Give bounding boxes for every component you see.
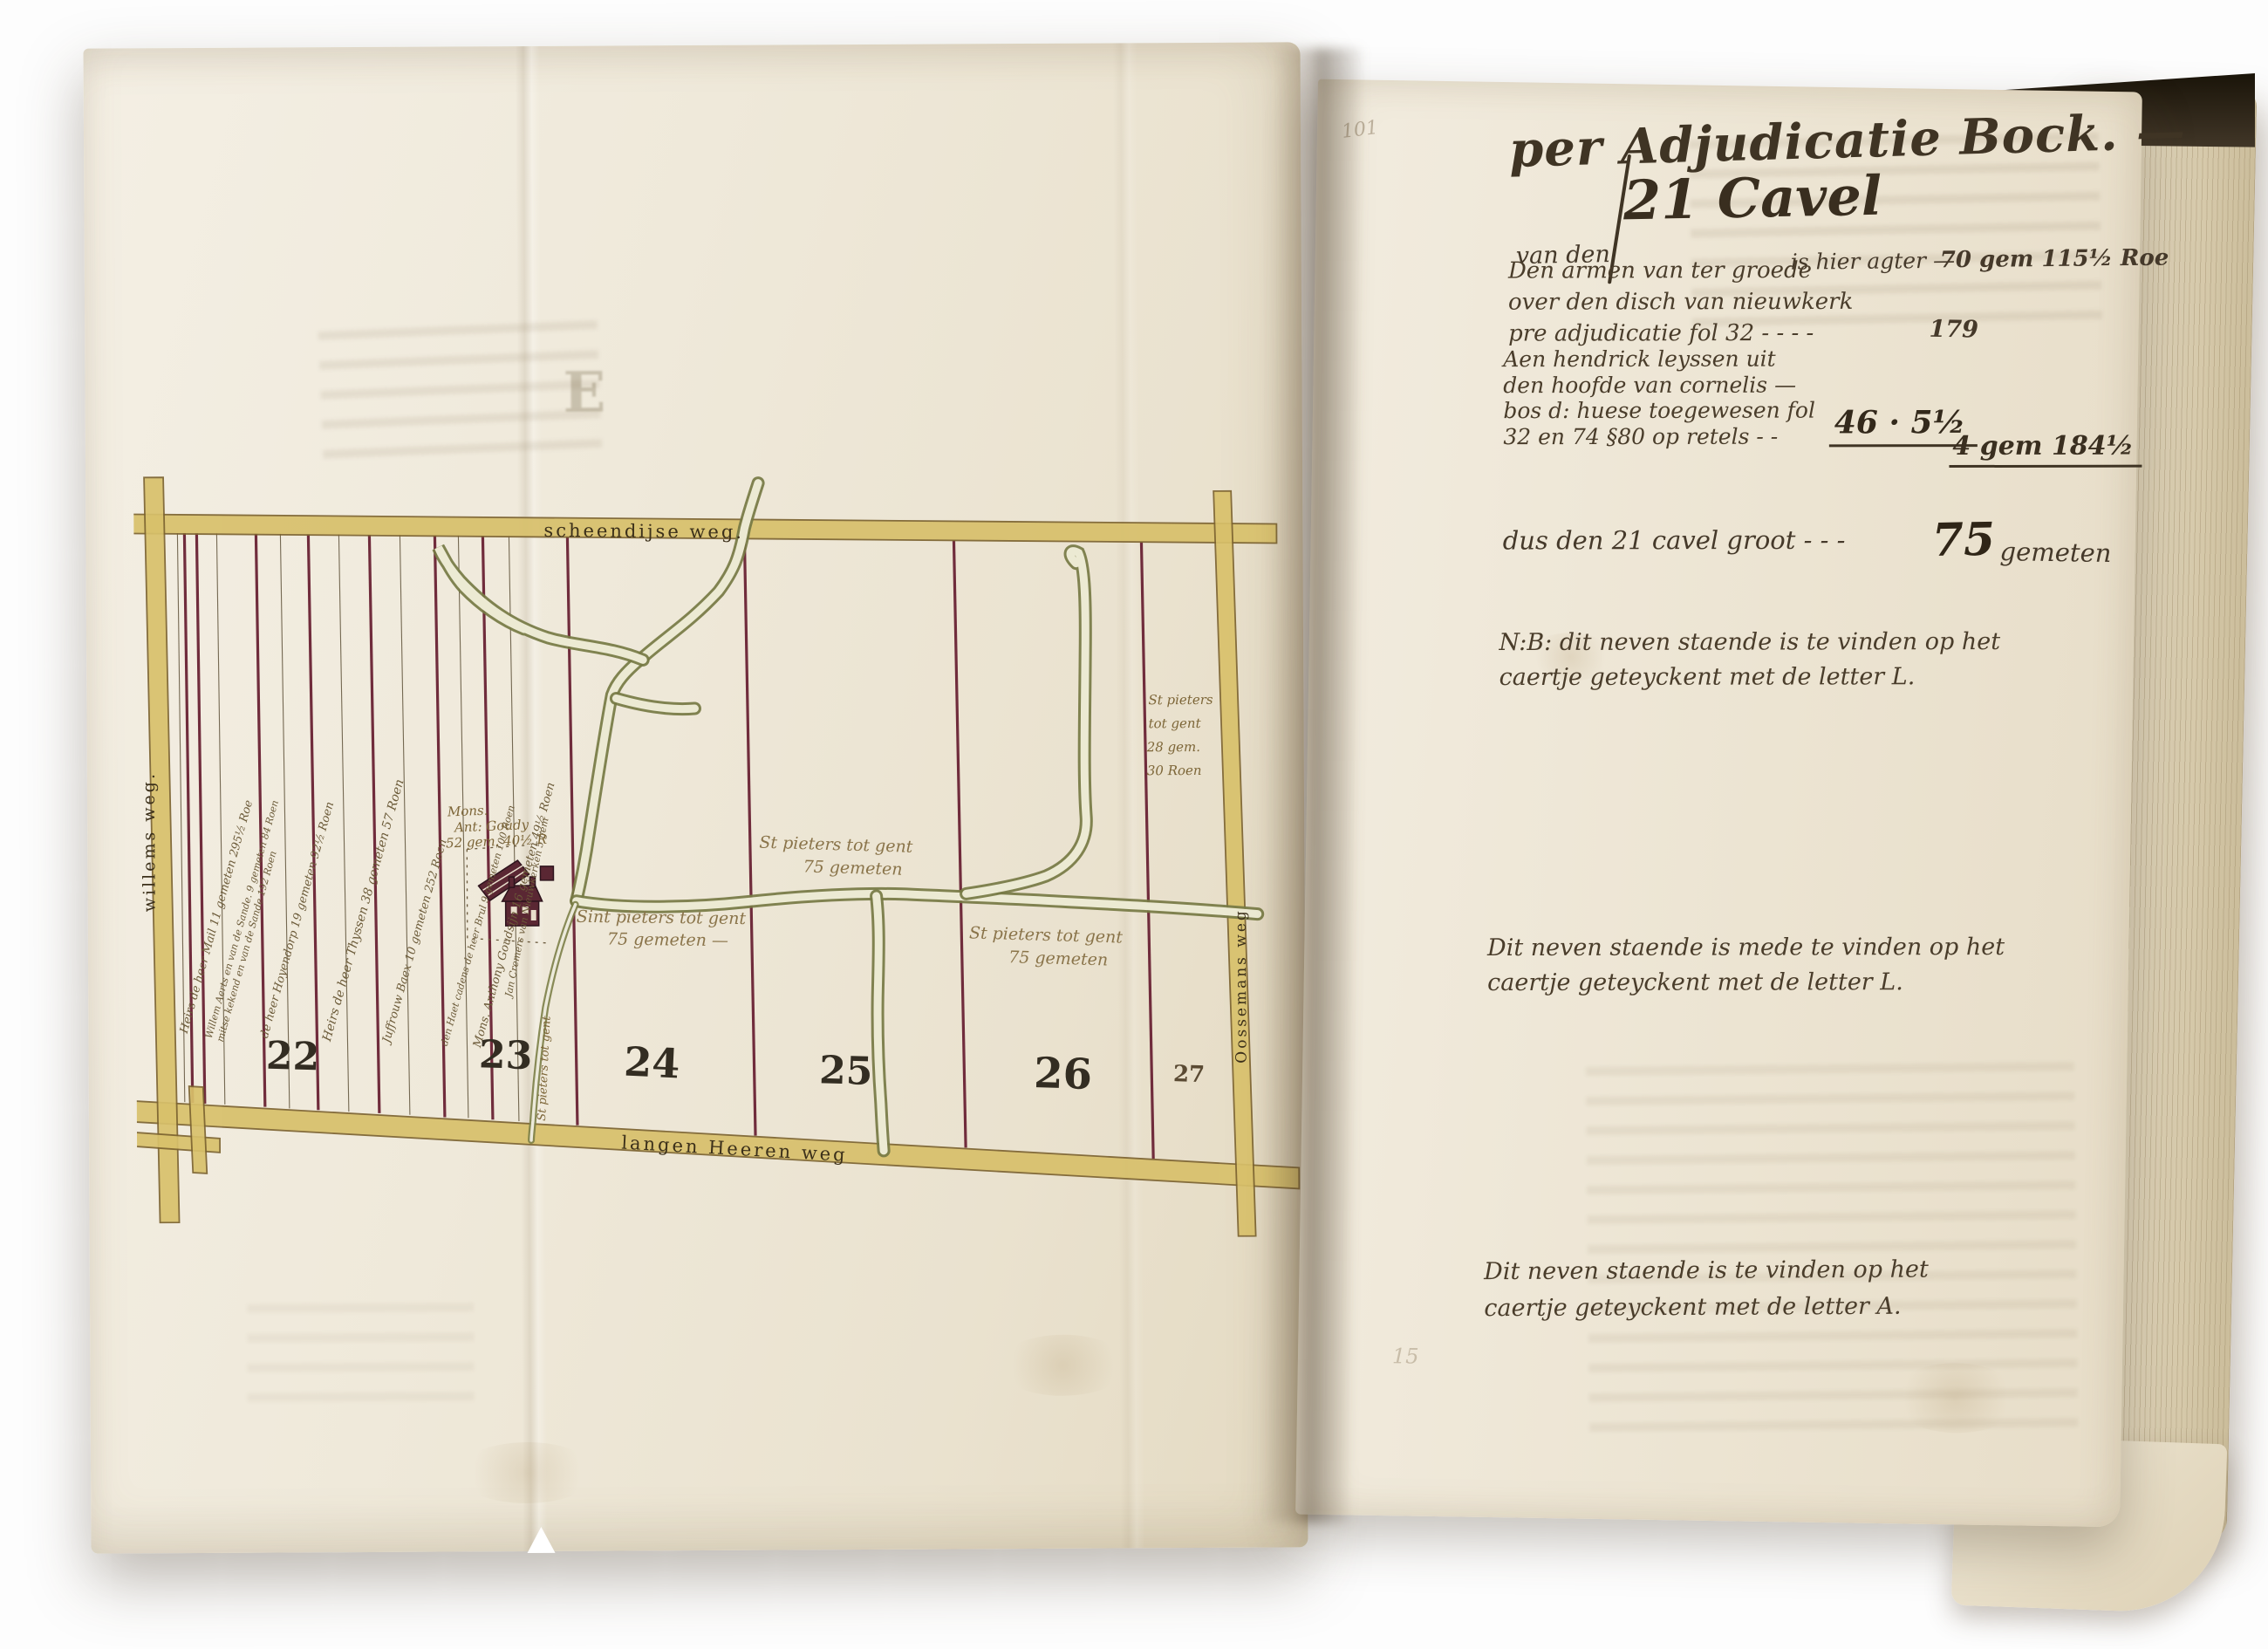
entry-line: pre adjudicatie fol 32 - - - -	[1508, 318, 1853, 350]
total-line: dus den 21 cavel groot - - -	[1503, 525, 1846, 556]
parcel-number-26: 26	[1033, 1049, 1092, 1099]
parcel26-label: 75 gemeten	[1008, 948, 1109, 969]
show-through-text	[318, 320, 603, 462]
note-line: caertje geteyckent met de letter A.	[1484, 1289, 1929, 1328]
parcel24-label: Sint pieters tot gent	[577, 907, 747, 928]
left-page: E	[83, 42, 1308, 1553]
entry-line: bos d: huese toegewesen fol	[1503, 398, 1815, 424]
note-middle: Dit neven staende is mede te vinden op h…	[1487, 930, 2005, 1001]
entry-armen-value: 179	[1929, 316, 1978, 344]
entry-hendrick-leyssen: Aen hendrick leyssen uit den hoofde van …	[1503, 346, 1815, 450]
note-line: Dit neven staende is te vinden op het	[1484, 1252, 1929, 1291]
parcel25-label: St pieters tot gent	[759, 833, 913, 857]
note-line: caertje geteyckent met de letter L.	[1487, 965, 2005, 1001]
entry-line: over den disch van nieuwkerk	[1508, 286, 1853, 318]
parcel-number-24: 24	[623, 1037, 680, 1087]
subtitle-cavel: 21 Cavel	[1622, 164, 1882, 233]
subtitle-value: 70 gem 115½ Roe	[1940, 245, 2169, 274]
show-through-letter: E	[563, 360, 605, 426]
parcel24-label: 75 gemeten —	[607, 930, 728, 951]
chimney	[509, 877, 514, 887]
road-stub-bottom-left-h	[133, 1132, 220, 1153]
note-line: caertje geteyckent met de letter L.	[1499, 660, 2001, 695]
entry-armen-ter-goede: Den armen van ter groede over den disch …	[1508, 255, 1854, 350]
road-label-right: Oossemans weg	[1233, 908, 1251, 1064]
parcel-numbers: 22 23 24 25 26 27	[265, 1029, 1206, 1104]
parcel-number-23: 23	[478, 1032, 533, 1078]
note-line: Dit neven staende is mede te vinden op h…	[1487, 930, 2005, 966]
entry-line: Den armen van ter groede	[1508, 255, 1853, 287]
road-label-top: scheendijse weg.	[543, 520, 744, 543]
road-right	[1213, 491, 1255, 1236]
total-unit: gemeten	[1999, 537, 2111, 568]
show-through-text-2	[247, 1303, 475, 1408]
parcel-number-27: 27	[1172, 1061, 1205, 1088]
parcel26-label: St pieters tot gent	[969, 923, 1124, 947]
faint-folio-number: 15	[1392, 1344, 1419, 1368]
shed	[540, 866, 553, 880]
farm-label: Mons.	[447, 803, 488, 820]
entry-hendrick-value-2: 4 gem 184½	[1949, 431, 2142, 468]
parcel25-label: 75 gemeten	[803, 857, 903, 879]
entry-line: 32 en 74 §80 op retels - -	[1503, 423, 1815, 449]
hand-drawn-parcel-map: scheendijse weg. langen Heeren weg wille…	[133, 469, 1311, 1265]
manuscript-photo: E	[0, 0, 2268, 1649]
parcel27-label: tot gent	[1149, 715, 1202, 731]
road-label-left: willems weg.	[140, 771, 160, 912]
parcel27-label: 30 Roen	[1147, 763, 1202, 778]
note-line: N:B: dit neven staende is te vinden op h…	[1499, 625, 2001, 660]
note-nb: N:B: dit neven staende is te vinden op h…	[1499, 625, 2001, 695]
entry-line: Aen hendrick leyssen uit	[1503, 346, 1815, 373]
parcel27-label: St pieters	[1148, 692, 1213, 708]
page-number: 101	[1341, 117, 1380, 143]
note-bottom: Dit neven staende is te vinden op het ca…	[1484, 1252, 1929, 1328]
ditch-vertical-label: St pieters tot gent	[536, 1015, 554, 1121]
road-stub-bottom-left-v	[189, 1086, 208, 1173]
parcel-number-22: 22	[265, 1034, 320, 1080]
total-value: 75	[1931, 513, 1996, 567]
parcel27-label: 28 gem.	[1146, 739, 1200, 755]
entry-line: den hoofde van cornelis —	[1503, 372, 1815, 398]
stain	[457, 1442, 597, 1504]
stain	[997, 1334, 1128, 1396]
strip-owner: Juffrouw Baex 10 gemeten 252 Roen	[379, 838, 450, 1047]
right-page: 101 per Adjudicatie Bock. — van den 21 C…	[1295, 79, 2142, 1528]
parcel-number-25: 25	[818, 1048, 873, 1094]
